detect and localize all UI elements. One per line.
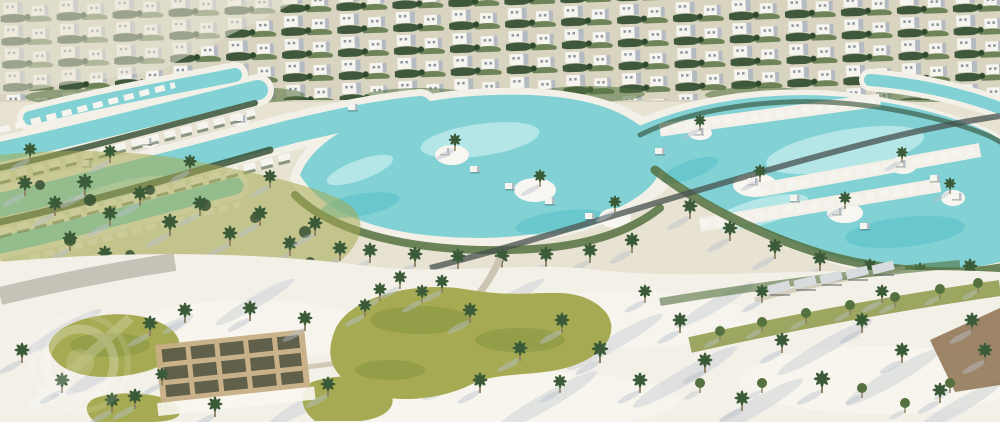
render-canvas: [0, 0, 1000, 422]
sand-park: [0, 254, 1000, 422]
aerial-resort-render: [0, 0, 1000, 422]
watermark-logo: [30, 315, 130, 411]
